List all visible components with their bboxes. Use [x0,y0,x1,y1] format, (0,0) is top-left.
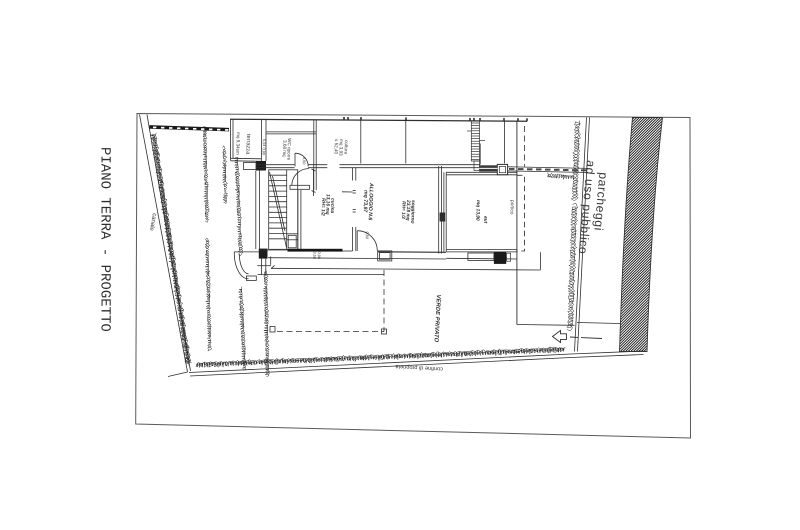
svg-text:s h2,40: s h2,40 [333,139,339,155]
svg-text:5,04 0,90: 5,04 0,90 [261,139,266,155]
svg-text:0,80: 0,80 [365,231,369,239]
svg-text:0,80: 0,80 [302,157,306,165]
svg-text:mq 13,90: mq 13,90 [474,200,481,221]
svg-text:3,50: 3,50 [312,251,316,259]
svg-text:0,90: 0,90 [317,251,321,259]
svg-text:PIANO TERRA - PROGETTO: PIANO TERRA - PROGETTO [97,147,113,332]
svg-text:RH= 1/3: RH= 1/3 [400,201,407,219]
svg-text:RH= 1/2: RH= 1/2 [320,198,327,216]
svg-text:3,68 mq: 3,68 mq [282,140,288,157]
svg-text:portico: portico [508,200,515,215]
svg-text:terrazza: terrazza [244,134,251,155]
svg-text:mq 73,97: mq 73,97 [362,190,369,214]
svg-text:aut: aut [482,216,488,224]
svg-text:mq 9,34sm: mq 9,34sm [235,132,241,155]
